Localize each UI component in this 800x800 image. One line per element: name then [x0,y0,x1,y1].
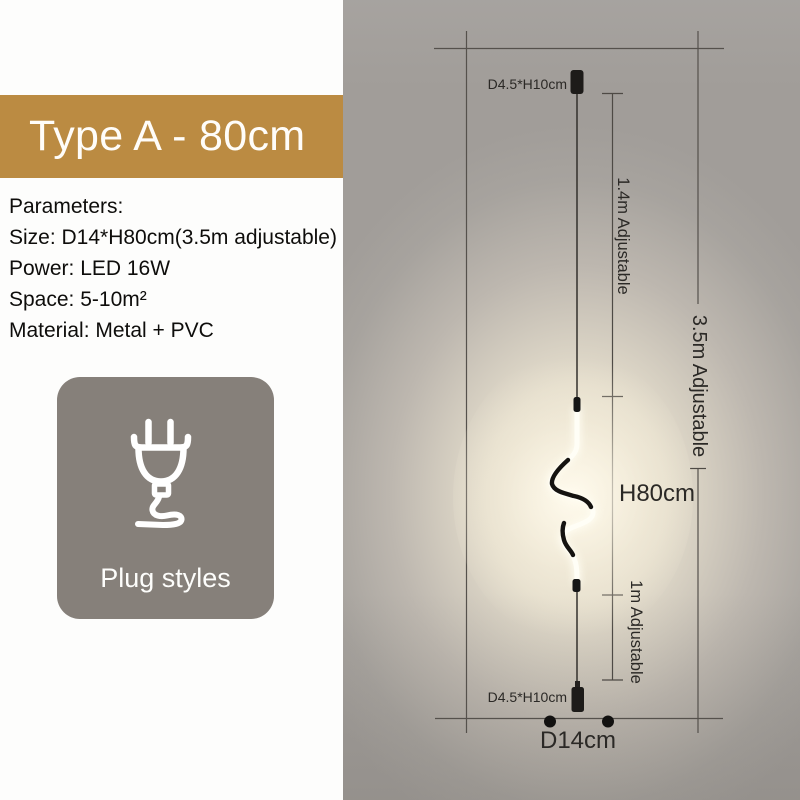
tube-top-connector [574,397,581,412]
parameters-heading: Parameters: [9,191,349,222]
base-nub [575,681,580,688]
plug-neck [155,484,169,495]
parameters-block: Parameters: Size: D14*H80cm(3.5m adjusta… [9,191,349,346]
plug-styles-label: Plug styles [57,563,274,594]
product-infographic: Type A - 80cm Parameters: Size: D14*H80c… [0,0,800,800]
info-panel: Type A - 80cm Parameters: Size: D14*H80c… [0,0,343,800]
dimension-diagram-panel: D4.5*H10cm 1.4m Adjustable 3.5m Adjustab… [343,0,800,800]
type-banner: Type A - 80cm [0,95,343,178]
plug-body-top [134,437,188,448]
diameter-dot-right [602,716,614,728]
ceiling-mount-cylinder [571,70,584,94]
total-adjust-label: 3.5m Adjustable [688,315,710,457]
diameter-dot-left [544,716,556,728]
parameter-power: Power: LED 16W [9,253,349,284]
parameter-space: Space: 5-10m² [9,284,349,315]
top-mount-size-label: D4.5*H10cm [488,76,567,92]
tube-bottom-connector [573,579,581,592]
plug-body-cup [139,448,184,482]
pendant-lamp-diagram: D4.5*H10cm 1.4m Adjustable 3.5m Adjustab… [343,0,800,800]
base-diameter-label: D14cm [540,727,616,754]
parameter-size: Size: D14*H80cm(3.5m adjustable) [9,222,349,253]
bottom-mount-size-label: D4.5*H10cm [488,689,567,705]
lower-adjust-label: 1m Adjustable [627,580,645,684]
type-banner-label: Type A - 80cm [29,112,305,160]
lamp-height-label: H80cm [619,480,695,507]
parameter-material: Material: Metal + PVC [9,315,349,346]
base-cylinder [572,687,585,712]
power-plug-icon [120,403,210,538]
plug-cord [138,497,182,525]
plug-styles-card: Plug styles [57,377,274,619]
upper-adjust-label: 1.4m Adjustable [614,177,632,294]
